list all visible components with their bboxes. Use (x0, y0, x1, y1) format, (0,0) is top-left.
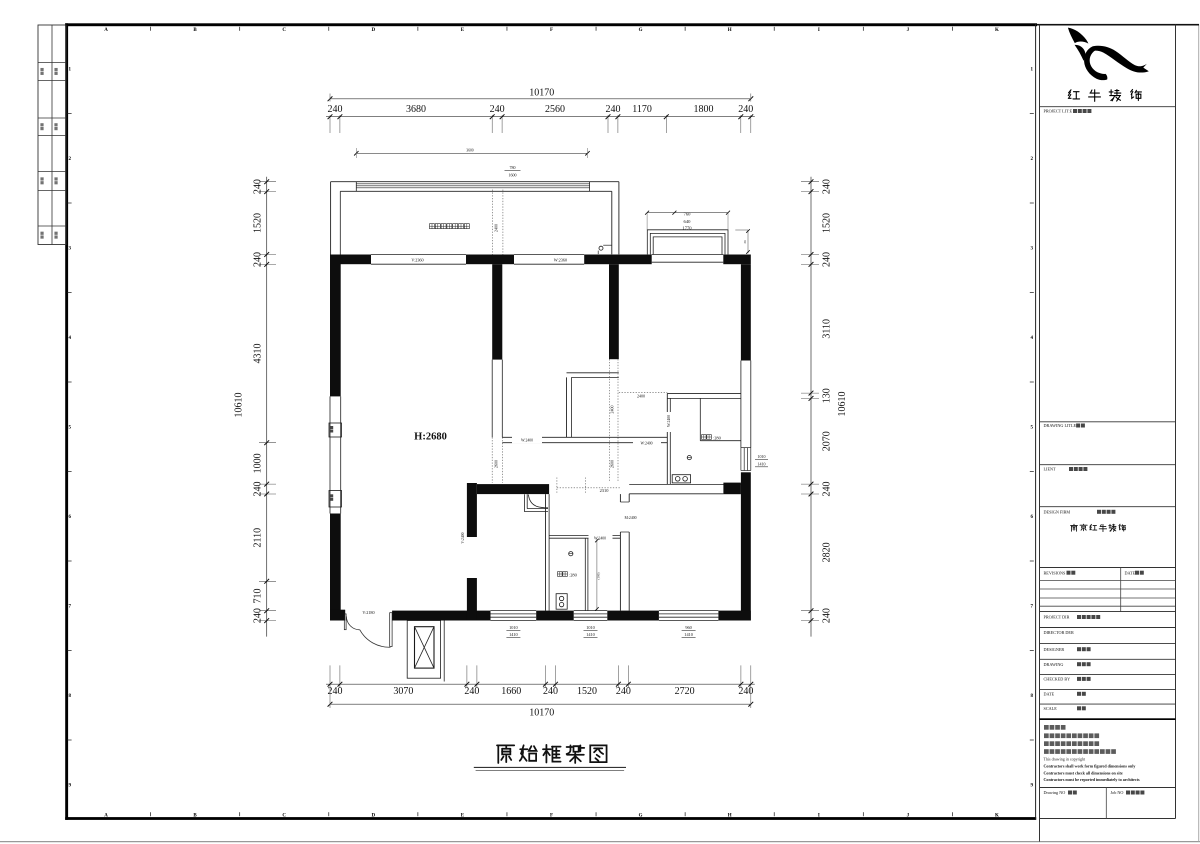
svg-text:F: F (550, 28, 553, 33)
svg-text:1600: 1600 (509, 173, 517, 178)
svg-text:30: 30 (743, 240, 747, 244)
svg-text:A: A (104, 28, 108, 33)
svg-text:W:2400: W:2400 (594, 536, 606, 540)
svg-text:240: 240 (327, 104, 342, 115)
svg-text:10610: 10610 (234, 393, 245, 418)
svg-text:240: 240 (252, 179, 263, 194)
svg-text:1410: 1410 (509, 632, 518, 637)
svg-text:V:2180: V:2180 (362, 610, 374, 615)
svg-text:240: 240 (464, 686, 479, 697)
svg-text:2820: 2820 (822, 542, 833, 562)
svg-text:1000: 1000 (252, 453, 263, 473)
svg-text:W:2360: W:2360 (554, 258, 567, 263)
svg-text:240: 240 (252, 608, 263, 623)
svg-text:1520: 1520 (252, 213, 263, 233)
svg-text:240: 240 (822, 608, 833, 623)
svg-text:2600: 2600 (493, 460, 498, 468)
svg-text:I: I (818, 814, 820, 819)
svg-text:DATE: DATE (1044, 691, 1055, 696)
svg-text::280: :280 (713, 435, 722, 440)
svg-text:LIENT: LIENT (1044, 467, 1057, 472)
svg-text:2600: 2600 (610, 460, 615, 468)
svg-text:1520: 1520 (822, 213, 833, 233)
svg-text:10610: 10610 (837, 392, 848, 417)
svg-text:3600: 3600 (466, 148, 473, 152)
svg-text:DESIGN FIRM: DESIGN FIRM (1044, 509, 1071, 514)
svg-text:G: G (639, 814, 643, 819)
svg-text:760: 760 (684, 212, 692, 217)
svg-text:DRAWING: DRAWING (1044, 662, 1064, 667)
svg-text:960: 960 (685, 625, 691, 630)
svg-text:1410: 1410 (586, 632, 595, 637)
svg-text:H:2680: H:2680 (414, 432, 447, 443)
svg-text:3110: 3110 (822, 319, 833, 339)
svg-text:2720: 2720 (675, 686, 695, 697)
svg-text:1010: 1010 (509, 625, 518, 630)
svg-text:D: D (371, 28, 375, 33)
svg-text:240: 240 (490, 104, 505, 115)
svg-text:W:2400: W:2400 (640, 441, 652, 445)
svg-text::280: :280 (569, 572, 578, 577)
svg-text:1800: 1800 (694, 104, 714, 115)
svg-text:3070: 3070 (393, 686, 413, 697)
svg-text:1410: 1410 (758, 461, 766, 466)
svg-text:CHECKED BY: CHECKED BY (1044, 677, 1071, 682)
svg-text:DIRECTOR DER: DIRECTOR DER (1044, 630, 1074, 635)
svg-text:240: 240 (822, 482, 833, 497)
svg-text:D: D (371, 814, 375, 819)
svg-text:1170: 1170 (632, 104, 652, 115)
svg-text:DATE: DATE (1125, 570, 1136, 575)
svg-text:2070: 2070 (822, 431, 833, 451)
svg-text:240: 240 (252, 482, 263, 497)
svg-text:W:2400: W:2400 (667, 415, 671, 427)
svg-text:240: 240 (252, 252, 263, 267)
svg-text:1660: 1660 (501, 686, 521, 697)
svg-text:K: K (995, 814, 999, 819)
svg-text:H: H (728, 814, 732, 819)
svg-text:W:2400: W:2400 (521, 438, 533, 442)
svg-text:640: 640 (684, 219, 692, 224)
svg-text:4310: 4310 (252, 344, 263, 364)
svg-text:1010: 1010 (758, 454, 766, 459)
svg-text:1410: 1410 (684, 632, 693, 637)
svg-text:DRAWING LITLE: DRAWING LITLE (1044, 423, 1077, 428)
svg-text:M:2400: M:2400 (624, 516, 636, 520)
svg-text:F: F (550, 814, 553, 819)
svg-text:PROJECT LIT:E: PROJECT LIT:E (1044, 109, 1073, 114)
svg-text:A: A (104, 814, 108, 819)
svg-text:710: 710 (252, 589, 263, 604)
svg-text:REVISIONS: REVISIONS (1044, 570, 1067, 575)
svg-text:I: I (818, 28, 820, 33)
svg-text:3680: 3680 (406, 104, 426, 115)
svg-text:V:2360: V:2360 (411, 258, 423, 263)
svg-text:Drawing NO: Drawing NO (1044, 790, 1066, 795)
svg-text:240: 240 (327, 686, 342, 697)
svg-text:240: 240 (616, 686, 631, 697)
svg-text:1520: 1520 (577, 686, 597, 697)
svg-text:240: 240 (822, 179, 833, 194)
svg-text:2310: 2310 (600, 488, 610, 493)
svg-text:240: 240 (543, 686, 558, 697)
svg-text:V:2400: V:2400 (461, 532, 465, 543)
svg-text:240: 240 (738, 686, 753, 697)
svg-text:240: 240 (605, 104, 620, 115)
svg-text:2110: 2110 (252, 528, 263, 548)
svg-text:240: 240 (738, 104, 753, 115)
svg-text:SCALE: SCALE (1044, 706, 1058, 711)
svg-text:2400: 2400 (637, 393, 645, 398)
svg-text:C: C (282, 28, 286, 33)
svg-text:2560: 2560 (545, 104, 565, 115)
svg-text:Contractors must be reported i: Contractors must be reported immediately… (1044, 777, 1140, 782)
svg-text:10170: 10170 (529, 88, 554, 99)
svg-text:G: G (639, 28, 643, 33)
svg-text:PROJECT DIR: PROJECT DIR (1044, 615, 1070, 620)
svg-text:This drawing in copyright: This drawing in copyright (1044, 756, 1087, 761)
svg-text:2400: 2400 (610, 406, 615, 414)
svg-text:10170: 10170 (529, 707, 554, 718)
svg-text:1010: 1010 (586, 625, 595, 630)
svg-text:H: H (728, 28, 732, 33)
svg-text:K: K (995, 28, 999, 33)
svg-text:Contractors must check all dim: Contractors must check all dimensions on… (1044, 771, 1123, 776)
svg-text:1770: 1770 (682, 225, 692, 230)
svg-text:Contractors shall work form fi: Contractors shall work form figured dime… (1044, 763, 1136, 768)
svg-text:2400: 2400 (494, 224, 499, 232)
svg-text:780: 780 (510, 165, 516, 170)
svg-text:C: C (282, 814, 286, 819)
svg-text:DESIGNER: DESIGNER (1044, 647, 1065, 652)
svg-text:240: 240 (822, 252, 833, 267)
svg-text:130: 130 (822, 388, 833, 403)
svg-text:(180): (180) (597, 573, 601, 580)
svg-text:Job NO: Job NO (1111, 790, 1124, 795)
